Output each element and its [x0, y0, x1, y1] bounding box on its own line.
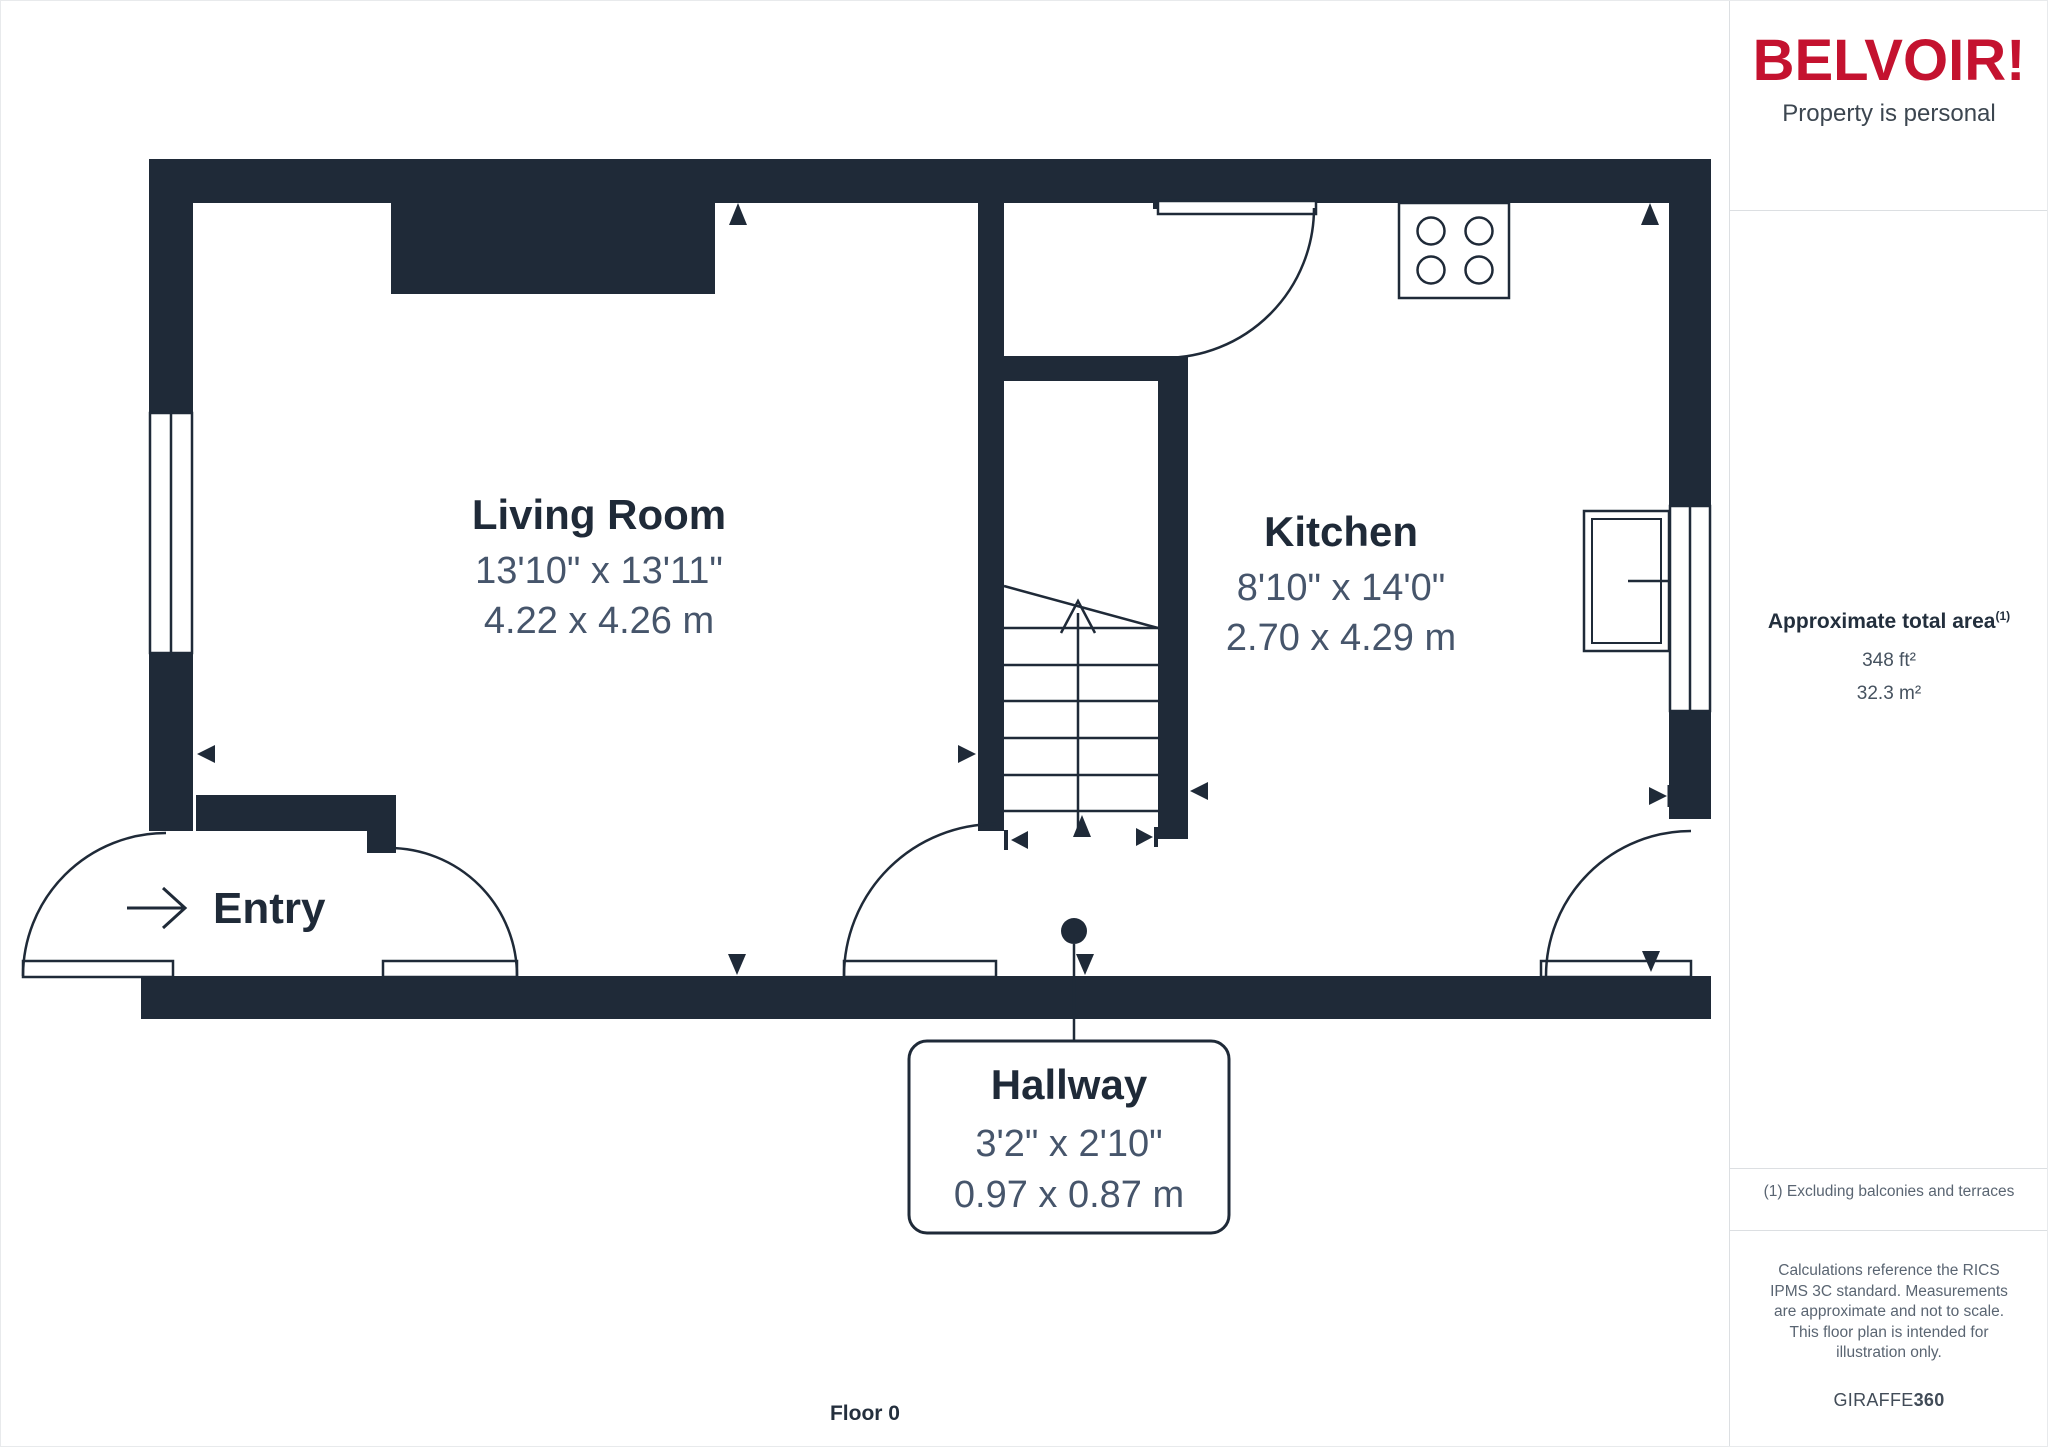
- kitchen-unit-icon: [1584, 511, 1669, 651]
- windows: [150, 413, 1710, 711]
- total-area-title-text: Approximate total area: [1768, 610, 1996, 633]
- floorplan-page: Hallway 3'2" x 2'10" 0.97 x 0.87 m Livin…: [0, 0, 2048, 1447]
- info-sidebar: BELVOIR! Property is personal Approximat…: [1729, 1, 2048, 1446]
- wall-right-upper: [1669, 159, 1711, 508]
- total-area-metric: 32.3 m²: [1730, 677, 2048, 710]
- kitchen-title: Kitchen: [1264, 508, 1418, 555]
- entry-arrow-icon: [127, 888, 185, 928]
- marker-down-icon: [728, 954, 746, 975]
- total-area-title: Approximate total area(1): [1730, 609, 2048, 634]
- wall-stairs-left: [978, 203, 1004, 831]
- marker-left-stop-icon: [1004, 830, 1028, 850]
- door-kitchen-back: [1541, 831, 1691, 977]
- living-room-title: Living Room: [472, 491, 726, 538]
- marker-left-icon: [1190, 782, 1208, 800]
- total-area-block: Approximate total area(1) 348 ft² 32.3 m…: [1730, 609, 2048, 710]
- entry-label: Entry: [213, 884, 326, 933]
- wall-porch-top: [196, 795, 396, 831]
- living-room-dims-imperial: 13'10" x 13'11": [475, 550, 723, 592]
- wall-right-lower: [1669, 709, 1711, 819]
- watermark-name: GIRAFFE: [1833, 1390, 1913, 1410]
- watermark-suffix: 360: [1914, 1390, 1945, 1410]
- window-kitchen: [1670, 506, 1710, 711]
- brand-tagline: Property is personal: [1730, 100, 2048, 128]
- kitchen-dims-metric: 2.70 x 4.29 m: [1226, 617, 1456, 659]
- marker-up-icon: [1073, 815, 1091, 837]
- hallway-dims-imperial: 3'2" x 2'10": [975, 1123, 1162, 1165]
- floorplan-drawing: Hallway 3'2" x 2'10" 0.97 x 0.87 m Livin…: [1, 1, 1729, 1447]
- wall-stairs-right: [1158, 356, 1188, 839]
- door-porch-left: [23, 833, 173, 977]
- wall-left-lower: [149, 651, 193, 831]
- total-area-footnote-marker: (1): [1995, 609, 2010, 623]
- wall-stairs-top: [1004, 356, 1158, 381]
- door-living-room: [844, 824, 996, 977]
- marker-right-stop-icon: [1136, 827, 1158, 847]
- marker-up-icon: [1641, 203, 1659, 225]
- marker-up-icon: [729, 203, 747, 225]
- hallway-dims-metric: 0.97 x 0.87 m: [954, 1174, 1184, 1216]
- staircase: [1004, 586, 1158, 831]
- brand-block: BELVOIR! Property is personal: [1730, 1, 2048, 211]
- plan-markers: [197, 203, 1672, 975]
- chimney-breast: [391, 203, 715, 294]
- hallway-title: Hallway: [991, 1061, 1148, 1108]
- hob-icon: [1399, 203, 1509, 298]
- window-living-room: [150, 413, 192, 653]
- hallway-position-dot: [1061, 918, 1087, 944]
- wall-bottom: [141, 976, 1711, 1019]
- footnote-text: (1) Excluding balconies and terraces: [1730, 1183, 2048, 1201]
- door-porch-right: [383, 848, 517, 977]
- disclaimer-text: Calculations reference the RICS IPMS 3C …: [1764, 1261, 2014, 1364]
- door-kitchen-top: [1158, 201, 1316, 358]
- kitchen-dims-imperial: 8'10" x 14'0": [1237, 567, 1445, 609]
- wall-top: [149, 159, 1711, 203]
- footnote-block: (1) Excluding balconies and terraces: [1730, 1168, 2048, 1201]
- floor-label: Floor 0: [1, 1402, 1729, 1426]
- marker-down-icon: [1076, 954, 1094, 975]
- room-labels: Living Room 13'10" x 13'11" 4.22 x 4.26 …: [213, 491, 1456, 933]
- disclaimer-block: Calculations reference the RICS IPMS 3C …: [1730, 1230, 2048, 1411]
- marker-left-icon: [197, 745, 215, 763]
- marker-right-stop-icon: [1649, 785, 1672, 807]
- marker-right-icon: [958, 745, 976, 763]
- living-room-dims-metric: 4.22 x 4.26 m: [484, 600, 714, 642]
- belvoir-logo: BELVOIR!: [1730, 31, 2048, 92]
- wall-left-upper: [149, 159, 193, 417]
- giraffe360-watermark: GIRAFFE360: [1764, 1390, 2014, 1411]
- total-area-imperial: 348 ft²: [1730, 644, 2048, 677]
